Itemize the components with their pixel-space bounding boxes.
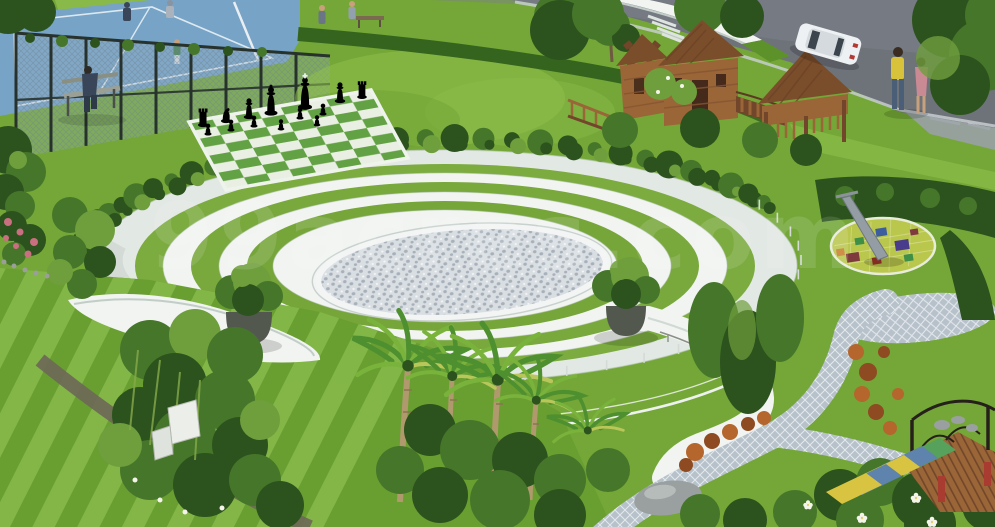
- watermark: 99acres.com: [150, 183, 861, 290]
- landscape-aerial-render: 99acres.com: [0, 0, 995, 527]
- render-canvas: 99acres.com: [0, 0, 995, 527]
